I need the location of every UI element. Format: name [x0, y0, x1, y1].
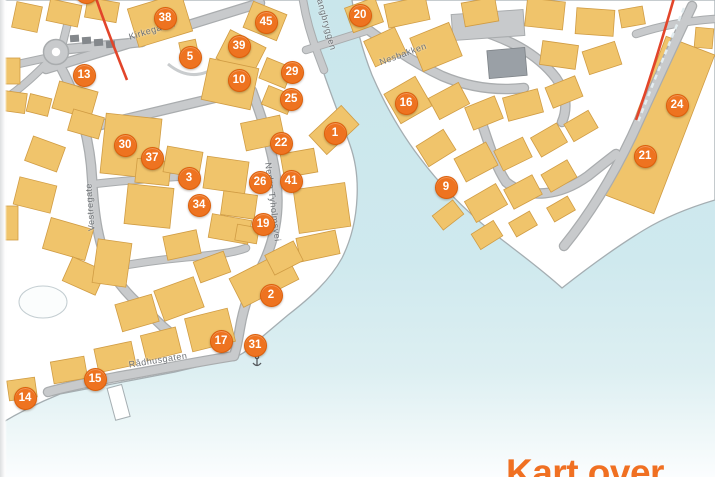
map-marker-9[interactable]: 9	[435, 176, 458, 199]
map-marker-17[interactable]: 17	[210, 330, 233, 353]
map-marker-16[interactable]: 16	[395, 92, 418, 115]
map-marker-41[interactable]: 41	[280, 170, 303, 193]
map-marker-45[interactable]: 45	[255, 11, 278, 34]
map-marker-24[interactable]: 24	[666, 94, 689, 117]
city-map	[0, 0, 715, 477]
map-marker-2[interactable]: 2	[260, 284, 283, 307]
map-marker-22[interactable]: 22	[270, 132, 293, 155]
map-marker-20[interactable]: 20	[349, 4, 372, 27]
map-marker-14[interactable]: 14	[14, 387, 37, 410]
roundabout-island	[52, 48, 60, 56]
map-marker-5[interactable]: 5	[179, 46, 202, 69]
map-marker-15[interactable]: 15	[84, 368, 107, 391]
map-marker-19[interactable]: 19	[252, 213, 275, 236]
map-marker-34[interactable]: 34	[188, 194, 211, 217]
map-marker-26[interactable]: 26	[249, 171, 272, 194]
map-marker-39[interactable]: 39	[228, 35, 251, 58]
map-marker-3[interactable]: 3	[178, 167, 201, 190]
map-page: KirkegatenLangbryggenNesbakkenNedre Tyho…	[0, 0, 715, 477]
map-marker-10[interactable]: 10	[228, 69, 251, 92]
map-marker-29[interactable]: 29	[281, 61, 304, 84]
map-heading: Kart over	[506, 452, 664, 477]
map-marker-25[interactable]: 25	[280, 88, 303, 111]
map-marker-13[interactable]: 13	[73, 64, 96, 87]
map-marker-37[interactable]: 37	[141, 147, 164, 170]
page-left-edge	[0, 0, 7, 477]
gray-building	[487, 47, 527, 78]
map-marker-31[interactable]: 31	[244, 334, 267, 357]
pond	[19, 286, 67, 318]
map-marker-30[interactable]: 30	[114, 134, 137, 157]
map-marker-38[interactable]: 38	[154, 7, 177, 30]
map-marker-1[interactable]: 1	[324, 122, 347, 145]
map-marker-21[interactable]: 21	[634, 145, 657, 168]
